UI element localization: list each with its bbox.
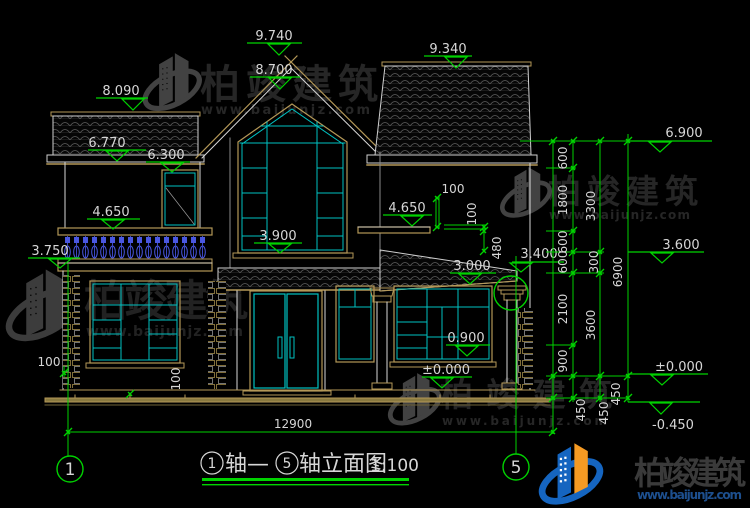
level-label: 3.600 [662, 238, 699, 253]
watermark-url: www.baijunjz.com [549, 208, 693, 222]
balcony [58, 228, 212, 271]
title-axis-5: 5 [283, 456, 292, 472]
dim-label: 450 [574, 399, 588, 422]
level-label: 3.400 [520, 247, 557, 262]
dim-label: 3300 [584, 191, 598, 222]
level-label: 9.740 [255, 29, 292, 44]
level-label: -0.450 [652, 418, 694, 433]
dim-label: 100 [465, 203, 479, 226]
level-label: 4.650 [388, 201, 425, 216]
right-roof [367, 62, 537, 165]
corner-quoins-right [518, 308, 533, 388]
dim-label: 100 [169, 368, 183, 391]
title-axis-1: 1 [208, 456, 217, 472]
title-underline [202, 478, 409, 481]
level-label: 8.090 [102, 84, 139, 99]
dim-label: 1800 [556, 185, 570, 216]
level-label: 3.750 [31, 244, 68, 259]
dim-label: 600 [556, 251, 570, 274]
title-scale: 1:100 [370, 456, 419, 476]
title-underline-2 [202, 484, 409, 485]
dim-label: 450 [609, 383, 623, 406]
level-label: 3.900 [259, 229, 296, 244]
watermark-url: www.baijunjz.com [201, 103, 373, 118]
dim-label: 900 [556, 350, 570, 373]
total-width-label: 12900 [274, 417, 312, 431]
level-label: 6.770 [88, 136, 125, 151]
dim-label: 480 [490, 237, 504, 260]
axis-number-left: 1 [65, 460, 76, 480]
level-label: 0.900 [447, 331, 484, 346]
level-label: ±0.000 [655, 360, 703, 375]
dim-label: 100 [442, 182, 465, 196]
brand-name: 柏竣建筑 [634, 454, 746, 492]
dim-label: 6900 [611, 257, 625, 288]
right-ledge [358, 227, 430, 233]
balcony-balusters [62, 236, 208, 259]
title-join: 轴— [225, 452, 269, 477]
elevation-drawing: 柏竣建筑 www.baijunjz.com 柏竣建筑 www.baijunjz.… [0, 0, 750, 508]
dim-label: 600 [556, 231, 570, 254]
cad-canvas: 柏竣建筑 www.baijunjz.com 柏竣建筑 www.baijunjz.… [0, 0, 750, 508]
dim-label: 100 [38, 355, 61, 369]
dim-label: 2100 [556, 294, 570, 325]
drawing-title: 1 轴— 5 轴立面图 1:100 [201, 452, 419, 485]
level-label: ±0.000 [422, 363, 470, 378]
dim-label: 300 [587, 251, 601, 274]
dim-label: 3600 [584, 310, 598, 341]
level-label: 3.000 [453, 259, 490, 274]
brand-url: www.baijunjz.com [637, 488, 743, 502]
level-label: 6.300 [147, 148, 184, 163]
level-label: 8.700 [255, 63, 292, 78]
ground-line [45, 398, 550, 402]
dim-label: 600 [556, 147, 570, 170]
level-label: 6.900 [665, 126, 702, 141]
pilaster-quoins [208, 281, 226, 389]
level-label: 9.340 [429, 42, 466, 57]
axis-number-right: 5 [511, 458, 522, 478]
level-label: 4.650 [92, 205, 129, 220]
